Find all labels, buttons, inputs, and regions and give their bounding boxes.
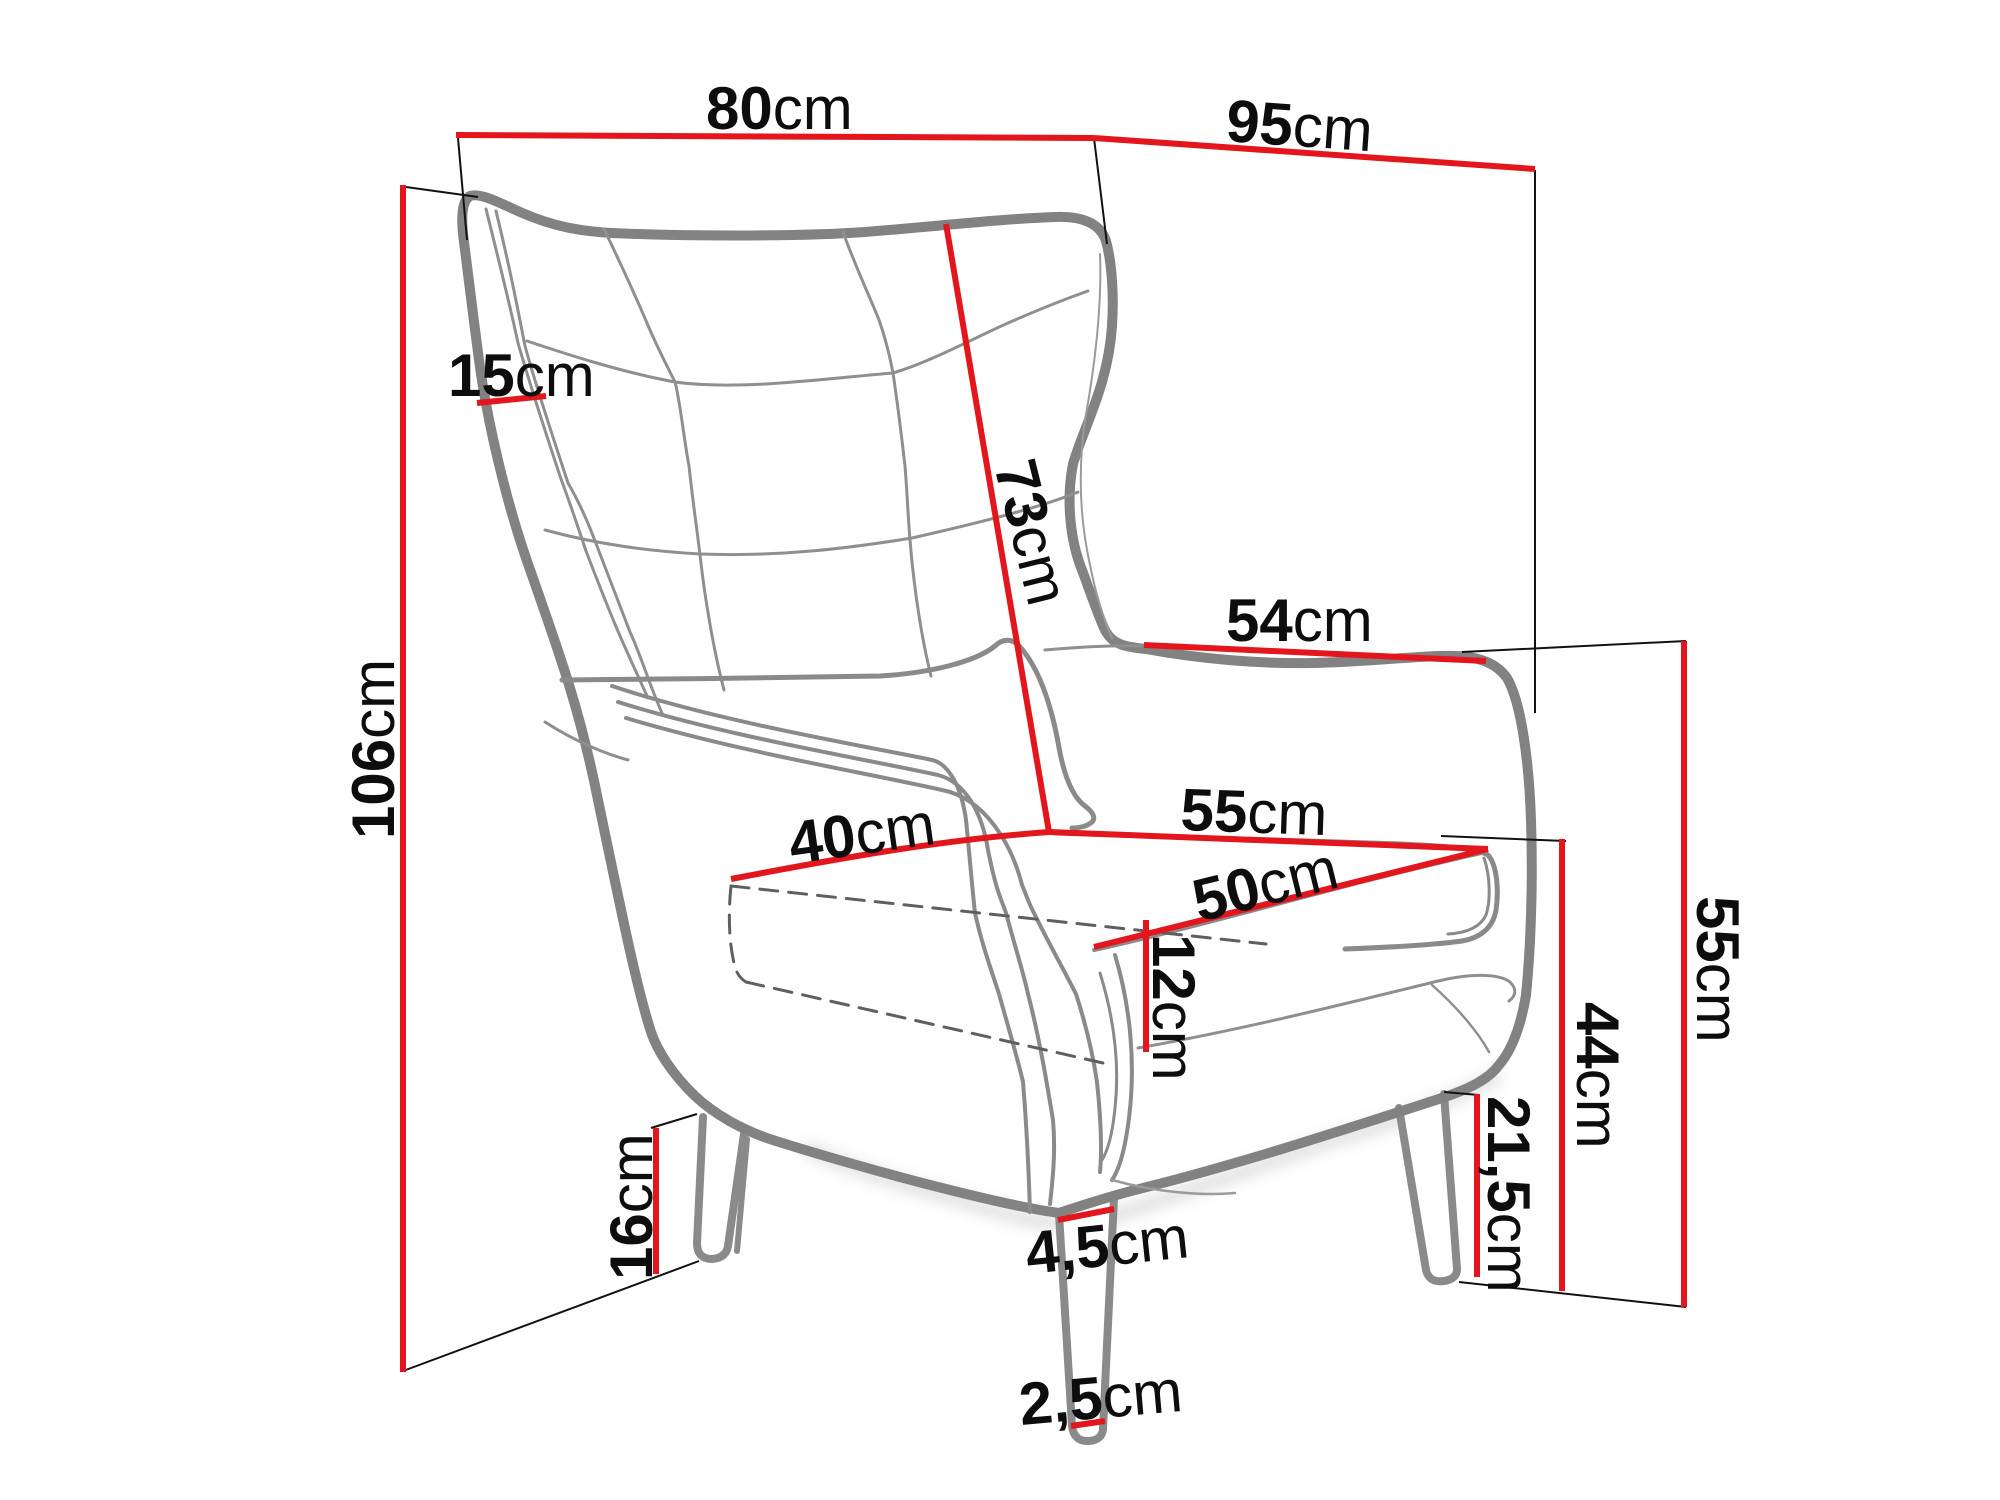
svg-text:55cm: 55cm [1180, 776, 1329, 848]
svg-text:12cm: 12cm [1140, 934, 1207, 1081]
svg-text:80cm: 80cm [706, 75, 853, 142]
svg-text:15cm: 15cm [448, 342, 595, 409]
svg-text:44cm: 44cm [1564, 1002, 1631, 1149]
svg-text:95cm: 95cm [1224, 87, 1375, 164]
svg-text:55cm: 55cm [1684, 896, 1751, 1043]
svg-text:2,5cm: 2,5cm [1016, 1357, 1185, 1438]
svg-text:106cm: 106cm [340, 659, 407, 839]
svg-text:21,5cm: 21,5cm [1475, 1096, 1542, 1293]
svg-text:16cm: 16cm [598, 1133, 665, 1280]
svg-text:54cm: 54cm [1226, 587, 1373, 654]
